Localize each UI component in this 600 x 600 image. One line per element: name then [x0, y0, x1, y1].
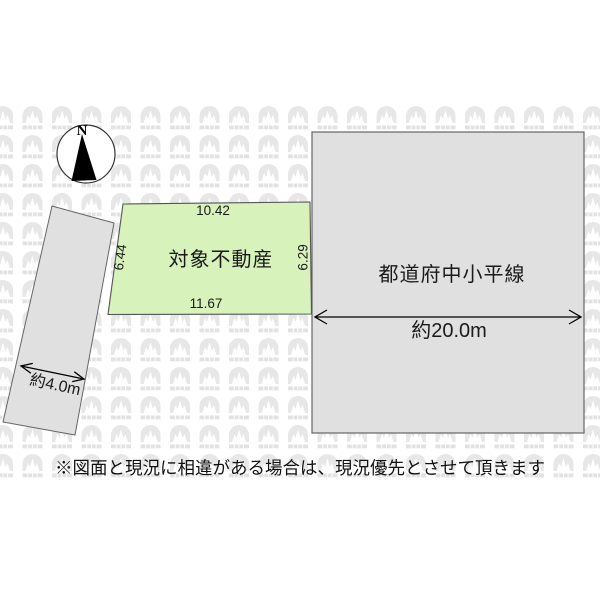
- main-road-width-label: 約20.0m: [369, 320, 529, 342]
- compass-north-label: N: [70, 123, 94, 140]
- plot-dimension-top: 10.42: [178, 204, 248, 219]
- subject-plot-label: 対象不動産: [131, 249, 311, 271]
- disclaimer-text: ※図面と現況に相違がある場合は、現況優先とさせて頂きます: [0, 459, 600, 478]
- main-road-name: 都道府中小平線: [342, 264, 562, 286]
- plot-map-canvas: N 10.42 11.67 6.44 6.29 対象不動産 都道府中小平線 約2…: [0, 0, 600, 600]
- plot-dimension-bottom: 11.67: [171, 297, 241, 312]
- figure-layer: [0, 0, 600, 600]
